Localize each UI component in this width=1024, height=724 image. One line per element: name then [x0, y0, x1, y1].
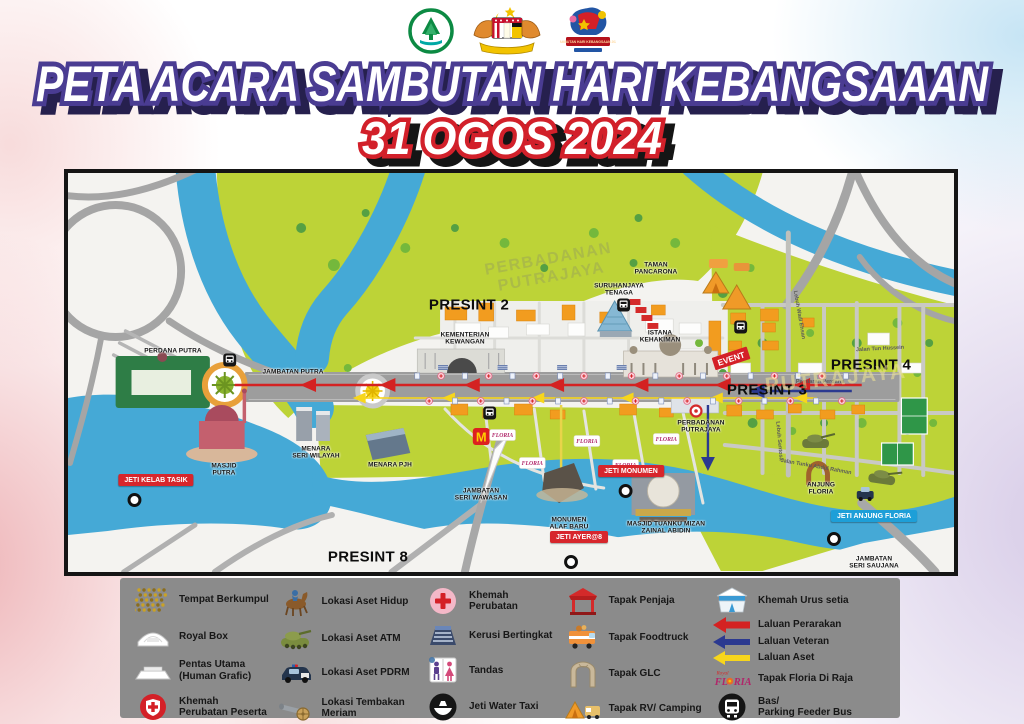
legend-item: Khemah Perubatan Peserta	[134, 692, 277, 722]
glc-icon	[564, 659, 602, 689]
police-car-icon	[277, 660, 315, 686]
map-label: TAMAN PANCARONA	[635, 262, 678, 277]
legend-item: Kerusi Bertingkat	[424, 623, 564, 649]
stall-icon	[564, 586, 602, 616]
map-badge: JETI AYER@8	[550, 531, 608, 543]
legend-item: Lokasi Aset ATM	[277, 626, 424, 652]
royal-box-icon	[134, 623, 172, 649]
map-label: JAMBATAN SERI SAUJANA	[849, 556, 899, 571]
tank-icon	[277, 626, 315, 652]
legend-item: Laluan Aset	[713, 650, 890, 666]
map-label: Lebuh Sentosa	[774, 421, 783, 461]
legend-label: Tapak Penjaja	[609, 595, 675, 606]
legend-column-4: Tapak PenjajaTapak FoodtruckTapak GLCTap…	[564, 586, 713, 722]
legend-label: Laluan Aset	[758, 652, 814, 663]
svg-text:FL: FL	[714, 677, 728, 688]
map-badge: JETI KELAB TASIK	[118, 474, 193, 486]
map-label: JAMBATAN PUTRA	[262, 368, 323, 375]
legend-label: Khemah Perubatan Peserta	[179, 696, 267, 718]
legend-label: Bas/ Parking Feeder Bus	[758, 696, 852, 718]
legend-column-5: Khemah Urus setiaLaluan PerarakanLaluan …	[713, 586, 890, 722]
map-label: JAMBATAN SERI WAWASAN	[455, 488, 507, 503]
map-label: PRESINT 8	[328, 549, 408, 566]
page-date: 31 OGOS 2024 31 OGOS 2024	[0, 113, 1024, 171]
event-map: M FLORIAFLORIAFLORIAFLORIAFLORIA EVENT P…	[64, 169, 958, 576]
arrow-yellow-icon	[713, 650, 751, 666]
svg-text:31 OGOS 2024: 31 OGOS 2024	[362, 113, 662, 164]
legend-label: Tapak RV/ Camping	[609, 703, 702, 714]
legend-item: RoyalFLRIATapak Floria Di Raja	[713, 666, 890, 692]
legend-item: Royal Box	[134, 623, 277, 649]
map-label: Jalan Tun Hussein	[856, 345, 904, 354]
map-label: MONUMEN ALAF BARU	[550, 517, 589, 532]
medic-participant-icon	[134, 692, 172, 722]
legend-item: Khemah Perubatan	[424, 586, 564, 616]
cannon-icon	[277, 694, 315, 722]
legend-item: Tapak Penjaja	[564, 586, 713, 616]
perbadanan-putrajaya-logo	[408, 8, 454, 54]
map-labels: PRESINT 2PRESINT 3PRESINT 4PRESINT 8PERD…	[68, 173, 954, 572]
legend-item: Laluan Veteran	[713, 634, 890, 650]
map-badge: JETI ANJUNG FLORIA	[831, 510, 917, 522]
legend-label: Laluan Perarakan	[758, 619, 841, 630]
map-label: MASJID PUTRA	[211, 463, 236, 478]
water-taxi-icon	[424, 692, 462, 722]
map-label: ANJUNG FLORIA	[807, 482, 835, 497]
map-label: PERBADANAN PUTRAJAYA	[677, 420, 724, 435]
legend-label: Tapak Floria Di Raja	[758, 673, 853, 684]
header-logos: SAMBUTAN HARI KEBANGSAAN 2024	[408, 5, 616, 57]
legend-item: Tapak Foodtruck	[564, 623, 713, 651]
legend-column-1: Tempat BerkumpulRoyal BoxPentas Utama (H…	[134, 586, 277, 722]
svg-text:Royal: Royal	[715, 671, 729, 677]
map-label: Lebuh Wadi Ehsan	[792, 290, 806, 339]
legend-panel: Tempat BerkumpulRoyal BoxPentas Utama (H…	[120, 578, 900, 718]
legend-label: Tempat Berkumpul	[179, 594, 269, 605]
legend-column-3: Khemah PerubatanKerusi BertingkatTandasJ…	[424, 586, 564, 722]
legend-item: Khemah Urus setia	[713, 586, 890, 616]
horse-icon	[277, 586, 315, 618]
logo-banner-text: SAMBUTAN HARI KEBANGSAAN 2024	[560, 40, 616, 44]
legend-item: Tandas	[424, 655, 564, 685]
legend-label: Tapak GLC	[609, 668, 661, 679]
legend-label: Khemah Perubatan	[469, 590, 518, 612]
map-label: MASJID TUANKU MIZAN ZAINAL ABIDIN	[627, 521, 705, 536]
crowd-icon	[134, 586, 172, 614]
map-label: MENARA SERI WILAYAH	[292, 446, 339, 461]
legend-label: Khemah Urus setia	[758, 595, 849, 606]
arrow-red-icon	[713, 616, 751, 634]
legend-label: Tapak Foodtruck	[609, 632, 689, 643]
map-label: SURUHANJAYA TENAGA	[594, 283, 644, 298]
stage-icon	[134, 659, 172, 683]
legend-item: Pentas Utama (Human Grafic)	[134, 659, 277, 683]
legend-item: Lokasi Tembakan Meriam	[277, 694, 424, 722]
legend-item: Tempat Berkumpul	[134, 586, 277, 614]
legend-label: Kerusi Bertingkat	[469, 630, 552, 641]
map-label: KEMENTERIAN KEWANGAN	[441, 332, 490, 347]
legend-item: Lokasi Aset PDRM	[277, 660, 424, 686]
legend-label: Tandas	[469, 665, 503, 676]
legend-label: Jeti Water Taxi	[469, 701, 538, 712]
foodtruck-icon	[564, 623, 602, 651]
jata-negara-malaysia-logo	[466, 5, 548, 57]
legend-label: Pentas Utama (Human Grafic)	[179, 659, 251, 681]
grandstand-icon	[424, 623, 462, 649]
map-label: ISTANA KEHAKIMAN	[640, 330, 681, 345]
map-label: PRESINT 2	[429, 297, 509, 314]
legend-label: Lokasi Aset Hidup	[322, 596, 409, 607]
medic-icon	[424, 586, 462, 616]
legend-column-2: Lokasi Aset HidupLokasi Aset ATMLokasi A…	[277, 586, 424, 722]
legend-item: Lokasi Aset Hidup	[277, 586, 424, 618]
legend-label: Royal Box	[179, 631, 228, 642]
legend-label: Lokasi Aset PDRM	[322, 667, 410, 678]
legend-item: Jeti Water Taxi	[424, 692, 564, 722]
map-label: PERDANA PUTRA	[144, 347, 201, 354]
map-label: Jalan Tunku Abdul Rahman	[780, 458, 852, 476]
legend-item: Tapak RV/ Camping	[564, 696, 713, 722]
map-badge: JETI MONUMEN	[598, 465, 664, 477]
legend-item: Bas/ Parking Feeder Bus	[713, 692, 890, 722]
legend-label: Laluan Veteran	[758, 636, 829, 647]
floria-icon: RoyalFLRIA	[713, 666, 751, 692]
svg-text:PETA ACARA SAMBUTAN HARI KEBAN: PETA ACARA SAMBUTAN HARI KEBANGSAAAN	[36, 57, 989, 112]
bus-icon	[713, 692, 751, 722]
map-label: MENARA PJH	[368, 461, 412, 468]
page-title: PETA ACARA SAMBUTAN HARI KEBANGSAAAN PET…	[0, 57, 1024, 117]
toilet-icon	[424, 655, 462, 685]
legend-item: Tapak GLC	[564, 659, 713, 689]
sambutan-hari-kebangsaan-logo: SAMBUTAN HARI KEBANGSAAN 2024	[560, 5, 616, 57]
legend-label: Lokasi Aset ATM	[322, 633, 401, 644]
camping-icon	[564, 696, 602, 722]
arrow-blue-icon	[713, 634, 751, 650]
svg-text:RIA: RIA	[733, 677, 751, 688]
legend-item: Laluan Perarakan	[713, 616, 890, 634]
legend-label: Lokasi Tembakan Meriam	[322, 697, 405, 719]
tent-hq-icon	[713, 586, 751, 616]
